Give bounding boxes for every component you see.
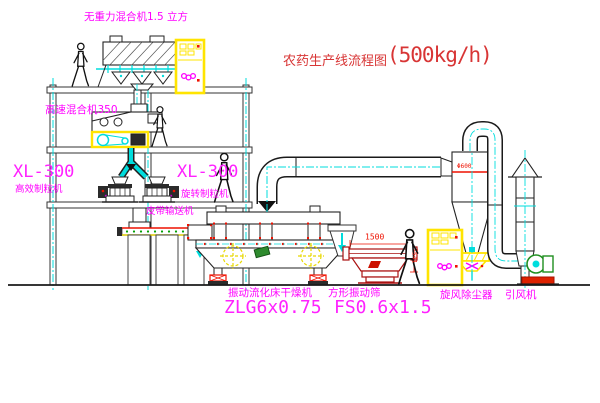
dryer-spring-feet <box>208 268 328 285</box>
label-granulator-center-name: 旋转制粒机 <box>181 190 229 200</box>
dim-cyclone-diameter: Φ600 <box>457 164 471 170</box>
control-cabinet-ground <box>428 230 462 285</box>
label-dryer-model: ZLG6x0.75 <box>224 299 322 317</box>
label-high-speed-mixer: 高速混合机350 <box>45 105 118 116</box>
control-cabinet-top <box>176 40 204 93</box>
label-belt-conveyor: 皮带输送机 <box>146 207 194 217</box>
diagram-title: 农药生产线流程图 <box>283 55 387 68</box>
label-cyclone: 旋风除尘器 <box>440 290 493 301</box>
label-gravity-mixer: 无重力混合机1.5 立方 <box>84 12 188 23</box>
label-granulator-center-model: XL-300 <box>177 164 238 181</box>
label-granulator-left-model: XL-300 <box>13 164 74 181</box>
granulator-left <box>98 177 138 202</box>
dryer-air-duct <box>258 157 452 212</box>
diagram-title-capacity: (500kg/h) <box>387 45 492 66</box>
label-sieve-model: FS0.6x1.5 <box>334 299 432 317</box>
dim-sieve-side: 541 <box>411 252 417 263</box>
dim-sieve-length: 1500 <box>365 234 384 242</box>
label-fan: 引风机 <box>505 290 537 301</box>
label-granulator-left-name: 高效制粒机 <box>15 185 63 195</box>
worker-top-floor <box>72 43 88 86</box>
fluid-bed-dryer <box>187 206 344 285</box>
flow-diagram-canvas: 农药生产线流程图 (500kg/h) 无重力混合机1.5 立方 高速混合机350… <box>0 0 600 403</box>
